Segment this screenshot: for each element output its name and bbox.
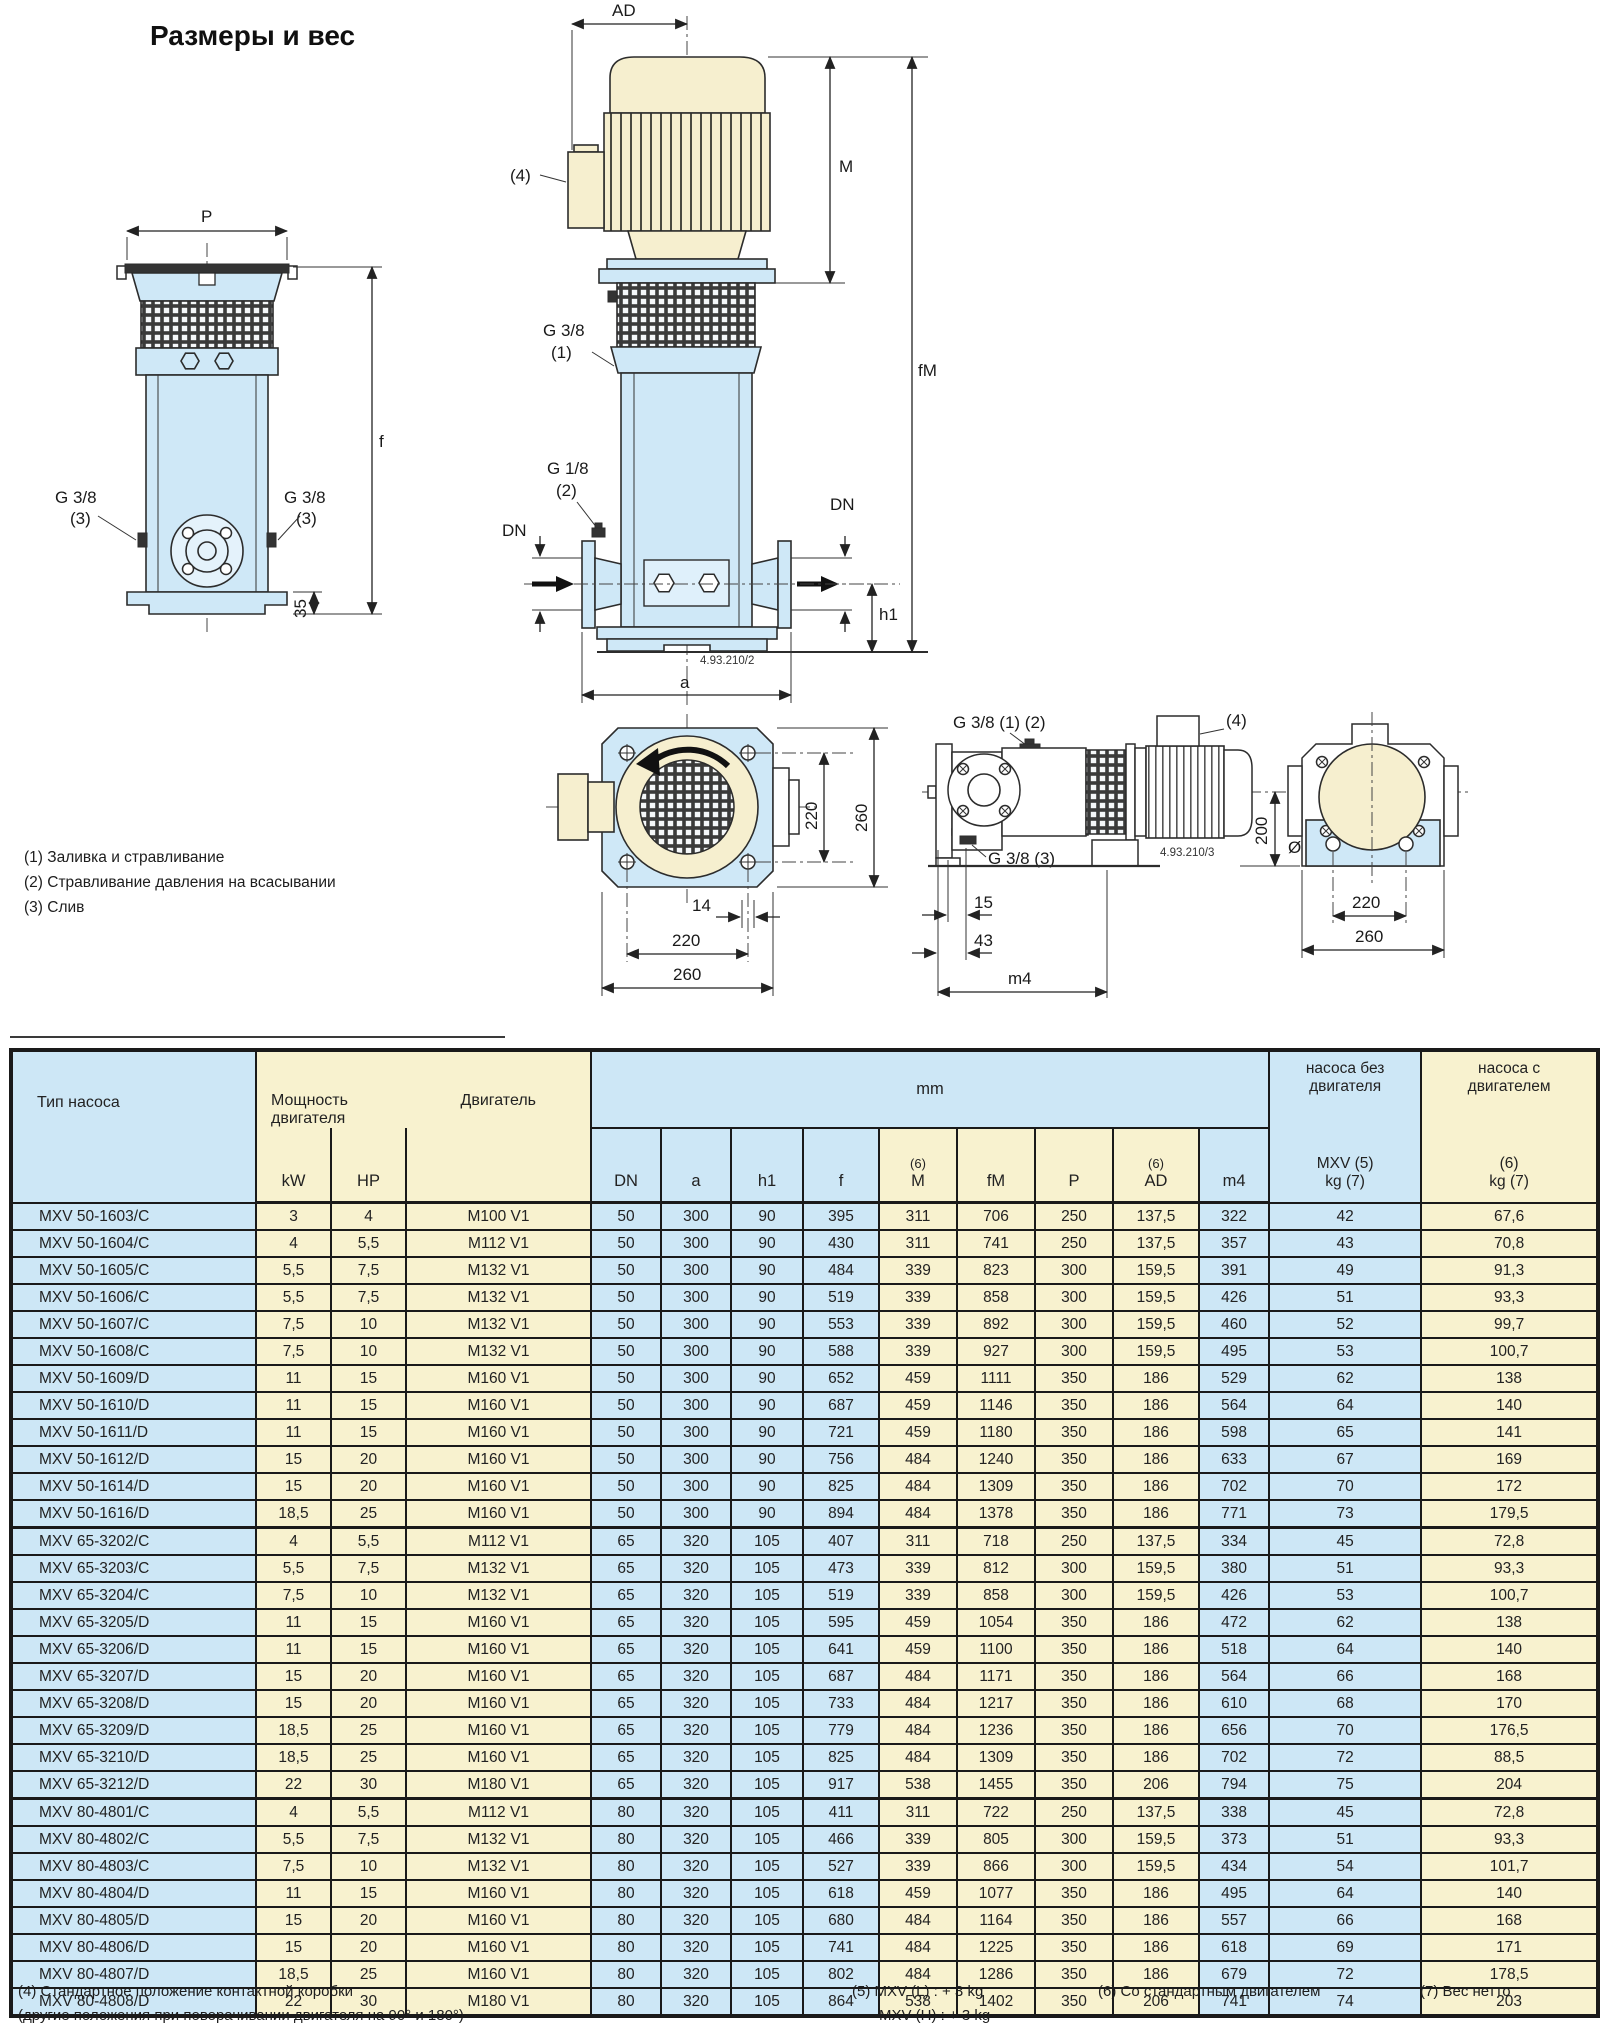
value-cell: 169 (1421, 1446, 1598, 1473)
value-cell: 25 (331, 1717, 406, 1744)
value-cell: 320 (661, 1988, 731, 2016)
value-cell: 88,5 (1421, 1744, 1598, 1771)
pump-type-cell: MXV 50-1604/C (11, 1230, 256, 1257)
value-cell: 426 (1199, 1284, 1269, 1311)
value-cell: 51 (1269, 1555, 1421, 1582)
value-cell: 168 (1421, 1907, 1598, 1934)
value-cell: M132 V1 (406, 1826, 591, 1853)
value-cell: 706 (957, 1203, 1035, 1231)
dim-label-260-h: 260 (673, 965, 701, 984)
footnote-5: (5) MXV (L) : + 3 kg MXV (H) : + 3 kg (852, 1980, 990, 2028)
value-cell: 42 (1269, 1203, 1421, 1231)
value-cell: 64 (1269, 1880, 1421, 1907)
value-cell: 1217 (957, 1690, 1035, 1717)
value-cell: 100,7 (1421, 1582, 1598, 1609)
value-cell: 473 (803, 1555, 879, 1582)
value-cell: 172 (1421, 1473, 1598, 1500)
value-cell: 350 (1035, 1717, 1113, 1744)
value-cell: 300 (661, 1473, 731, 1500)
drawing-code-side: 4.93.210/3 (1160, 847, 1214, 859)
value-cell: 338 (1199, 1799, 1269, 1827)
col-header-pump-type: Тип насоса (11, 1050, 256, 1203)
value-cell: M160 V1 (406, 1717, 591, 1744)
value-cell: 7,5 (331, 1826, 406, 1853)
col-header-motor-spacer (406, 1128, 591, 1203)
col-header-f: f (803, 1128, 879, 1203)
value-cell: 1225 (957, 1934, 1035, 1961)
value-cell: 49 (1269, 1257, 1421, 1284)
value-cell: 53 (1269, 1582, 1421, 1609)
value-cell: 466 (803, 1826, 879, 1853)
value-cell: 159,5 (1113, 1582, 1199, 1609)
value-cell: 90 (731, 1257, 803, 1284)
value-cell: 67,6 (1421, 1203, 1598, 1231)
value-cell: 90 (731, 1446, 803, 1473)
value-cell: 1309 (957, 1473, 1035, 1500)
value-cell: M160 V1 (406, 1744, 591, 1771)
value-cell: 300 (661, 1203, 731, 1231)
value-cell: 1171 (957, 1663, 1035, 1690)
value-cell: 687 (803, 1663, 879, 1690)
terminal-box (568, 152, 604, 228)
value-cell: 65 (1269, 1419, 1421, 1446)
value-cell: 15 (331, 1609, 406, 1636)
coupling-guard (141, 301, 273, 348)
value-cell: 186 (1113, 1473, 1199, 1500)
value-cell: 50 (591, 1446, 661, 1473)
value-cell: 15 (256, 1473, 331, 1500)
value-cell: 10 (331, 1311, 406, 1338)
table-row: MXV 50-1611/D1115M160 V15030090721459118… (11, 1419, 1598, 1446)
value-cell: 90 (731, 1365, 803, 1392)
value-cell: 311 (879, 1799, 957, 1827)
ref-1: (1) (551, 343, 572, 362)
value-cell: 320 (661, 1717, 731, 1744)
value-cell: 391 (1199, 1257, 1269, 1284)
drawing-pump-front: P f 35 G 3/8 (3) G 3/8 (3) (55, 207, 384, 635)
value-cell: 51 (1269, 1826, 1421, 1853)
value-cell: 1146 (957, 1392, 1035, 1419)
value-cell: 50 (591, 1311, 661, 1338)
value-cell: 186 (1113, 1880, 1199, 1907)
table-row: MXV 65-3205/D1115M160 V16532010559545910… (11, 1609, 1598, 1636)
dim-label-43: 43 (974, 931, 993, 950)
dim-label-15: 15 (974, 893, 993, 912)
value-cell: 93,3 (1421, 1826, 1598, 1853)
value-cell: 320 (661, 1663, 731, 1690)
value-cell: M160 V1 (406, 1934, 591, 1961)
value-cell: 300 (661, 1365, 731, 1392)
value-cell: 350 (1035, 1690, 1113, 1717)
value-cell: 69 (1269, 1934, 1421, 1961)
value-cell: 159,5 (1113, 1338, 1199, 1365)
value-cell: 70 (1269, 1717, 1421, 1744)
drawing-pump-plan: 220 260 14 220 260 (546, 714, 888, 996)
value-cell: 138 (1421, 1365, 1598, 1392)
value-cell: 794 (1199, 1771, 1269, 1799)
value-cell: 137,5 (1113, 1230, 1199, 1257)
power-label: Мощностьдвигателя (271, 1092, 348, 1128)
dimensions-weight-table: Тип насоса Мощностьдвигателя Двигатель m… (9, 1048, 1600, 2018)
value-cell: 339 (879, 1555, 957, 1582)
value-cell: 484 (879, 1717, 957, 1744)
value-cell: M180 V1 (406, 1771, 591, 1799)
value-cell: 1240 (957, 1446, 1035, 1473)
value-cell: 687 (803, 1392, 879, 1419)
value-cell: 518 (1199, 1636, 1269, 1663)
value-cell: 20 (331, 1690, 406, 1717)
value-cell: 320 (661, 1636, 731, 1663)
col-header-weight-without-motor: насоса бездвигателя MXV (5)kg (7) (1269, 1050, 1421, 1203)
table-row: MXV 50-1603/C34M100 V1503009039531170625… (11, 1203, 1598, 1231)
value-cell: 99,7 (1421, 1311, 1598, 1338)
dim-label-ad: AD (612, 1, 636, 20)
value-cell: M160 V1 (406, 1663, 591, 1690)
value-cell: 300 (1035, 1311, 1113, 1338)
value-cell: 105 (731, 1988, 803, 2016)
value-cell: M160 V1 (406, 1500, 591, 1528)
table-row: MXV 65-3208/D1520M160 V16532010573348412… (11, 1690, 1598, 1717)
value-cell: 339 (879, 1284, 957, 1311)
value-cell: 484 (879, 1934, 957, 1961)
value-cell: 50 (591, 1419, 661, 1446)
value-cell: M112 V1 (406, 1230, 591, 1257)
value-cell: 140 (1421, 1392, 1598, 1419)
value-cell: 11 (256, 1392, 331, 1419)
value-cell: 339 (879, 1257, 957, 1284)
value-cell: 339 (879, 1338, 957, 1365)
value-cell: 250 (1035, 1230, 1113, 1257)
col-header-a: a (661, 1128, 731, 1203)
value-cell: 320 (661, 1528, 731, 1556)
value-cell: 350 (1035, 1473, 1113, 1500)
value-cell: 73 (1269, 1500, 1421, 1528)
table-row: MXV 80-4806/D1520M160 V18032010574148412… (11, 1934, 1598, 1961)
value-cell: 557 (1199, 1907, 1269, 1934)
value-cell: 66 (1269, 1663, 1421, 1690)
value-cell: 7,5 (331, 1284, 406, 1311)
value-cell: 5,5 (256, 1826, 331, 1853)
value-cell: 430 (803, 1230, 879, 1257)
ref-3-right: (3) (296, 509, 317, 528)
ref-4-side: (4) (1226, 711, 1247, 730)
value-cell: 300 (1035, 1338, 1113, 1365)
value-cell: 22 (256, 1771, 331, 1799)
value-cell: 300 (1035, 1257, 1113, 1284)
value-cell: 171 (1421, 1934, 1598, 1961)
value-cell: 426 (1199, 1582, 1269, 1609)
value-cell: 186 (1113, 1365, 1199, 1392)
value-cell: 90 (731, 1392, 803, 1419)
dim-label-260-end: 260 (1355, 927, 1383, 946)
weight-without-motor-unit: MXV (5)kg (7) (1270, 1155, 1420, 1191)
value-cell: 45 (1269, 1528, 1421, 1556)
value-cell: 350 (1035, 1744, 1113, 1771)
value-cell: 65 (591, 1609, 661, 1636)
value-cell: M132 V1 (406, 1284, 591, 1311)
value-cell: 159,5 (1113, 1284, 1199, 1311)
value-cell: 771 (1199, 1500, 1269, 1528)
dim-label-dn-left: DN (502, 521, 527, 540)
col-header-m4: m4 (1199, 1128, 1269, 1203)
value-cell: 140 (1421, 1636, 1598, 1663)
value-cell: 18,5 (256, 1744, 331, 1771)
value-cell: 411 (803, 1799, 879, 1827)
value-cell: 300 (661, 1500, 731, 1528)
value-cell: 1077 (957, 1880, 1035, 1907)
value-cell: 495 (1199, 1338, 1269, 1365)
value-cell: 186 (1113, 1934, 1199, 1961)
value-cell: 53 (1269, 1338, 1421, 1365)
pump-base (127, 592, 287, 614)
drawing-code-front: 4.93.210/2 (700, 655, 754, 667)
ref-4: (4) (510, 166, 531, 185)
catalog-page: { "page": { "title": "Размеры и вес" }, … (0, 0, 1600, 2040)
col-header-ad: (6)AD (1113, 1128, 1199, 1203)
value-cell: 186 (1113, 1663, 1199, 1690)
value-cell: 334 (1199, 1528, 1269, 1556)
value-cell: 322 (1199, 1203, 1269, 1231)
table-row: MXV 65-3206/D1115M160 V16532010564145911… (11, 1636, 1598, 1663)
col-header-h1: h1 (731, 1128, 803, 1203)
value-cell: 311 (879, 1203, 957, 1231)
value-cell: 5,5 (331, 1528, 406, 1556)
pump-type-cell: MXV 50-1616/D (11, 1500, 256, 1528)
value-cell: 320 (661, 1961, 731, 1988)
value-cell: 50 (591, 1500, 661, 1528)
value-cell: 460 (1199, 1311, 1269, 1338)
value-cell: 105 (731, 1582, 803, 1609)
value-cell: 105 (731, 1934, 803, 1961)
value-cell: 1054 (957, 1609, 1035, 1636)
value-cell: 72,8 (1421, 1528, 1598, 1556)
value-cell: 11 (256, 1419, 331, 1446)
value-cell: 105 (731, 1826, 803, 1853)
value-cell: 350 (1035, 1446, 1113, 1473)
col-header-fm: fM (957, 1128, 1035, 1203)
motor-cap (610, 57, 765, 113)
value-cell: 50 (591, 1392, 661, 1419)
value-cell: 722 (957, 1799, 1035, 1827)
ref-2: (2) (556, 481, 577, 500)
table-row: MXV 50-1605/C5,57,5M132 V150300904843398… (11, 1257, 1598, 1284)
value-cell: 30 (331, 1771, 406, 1799)
value-cell: 350 (1035, 1500, 1113, 1528)
value-cell: 50 (591, 1338, 661, 1365)
port-label-g38-right: G 3/8 (284, 488, 326, 507)
value-cell: 756 (803, 1446, 879, 1473)
note-1: (1) Заливка и стравливание (24, 845, 336, 870)
value-cell: 65 (591, 1528, 661, 1556)
value-cell: 300 (661, 1392, 731, 1419)
value-cell: 652 (803, 1365, 879, 1392)
col-header-p: P (1035, 1128, 1113, 1203)
value-cell: 459 (879, 1419, 957, 1446)
value-cell: 733 (803, 1690, 879, 1717)
value-cell: M100 V1 (406, 1203, 591, 1231)
value-cell: 141 (1421, 1419, 1598, 1446)
value-cell: 320 (661, 1853, 731, 1880)
value-cell: 1236 (957, 1717, 1035, 1744)
value-cell: 137,5 (1113, 1203, 1199, 1231)
value-cell: 357 (1199, 1230, 1269, 1257)
dim-label-14: 14 (692, 896, 711, 915)
value-cell: 15 (256, 1934, 331, 1961)
value-cell: 588 (803, 1338, 879, 1365)
value-cell: 350 (1035, 1365, 1113, 1392)
table-row: MXV 65-3204/C7,510M132 V1653201055193398… (11, 1582, 1598, 1609)
value-cell: 15 (256, 1663, 331, 1690)
value-cell: 618 (803, 1880, 879, 1907)
value-cell: 519 (803, 1582, 879, 1609)
value-cell: 4 (256, 1230, 331, 1257)
value-cell: 11 (256, 1365, 331, 1392)
value-cell: M132 V1 (406, 1853, 591, 1880)
note-3: (3) Слив (24, 895, 336, 920)
value-cell: 67 (1269, 1446, 1421, 1473)
value-cell: 350 (1035, 1636, 1113, 1663)
pump-type-cell: MXV 65-3207/D (11, 1663, 256, 1690)
value-cell: 90 (731, 1419, 803, 1446)
value-cell: M112 V1 (406, 1799, 591, 1827)
value-cell: 186 (1113, 1690, 1199, 1717)
value-cell: 65 (591, 1582, 661, 1609)
dim-label-m: M (839, 157, 853, 176)
value-cell: 186 (1113, 1446, 1199, 1473)
value-cell: 140 (1421, 1880, 1598, 1907)
footnote-7: (7) Вес нетто (1420, 1980, 1511, 2004)
value-cell: 300 (1035, 1284, 1113, 1311)
value-cell: 1164 (957, 1907, 1035, 1934)
pump-type-cell: MXV 50-1606/C (11, 1284, 256, 1311)
value-cell: 311 (879, 1230, 957, 1257)
table-row: MXV 65-3209/D18,525M160 V165320105779484… (11, 1717, 1598, 1744)
value-cell: 721 (803, 1419, 879, 1446)
value-cell: 350 (1035, 1880, 1113, 1907)
value-cell: 4 (256, 1528, 331, 1556)
value-cell: M132 V1 (406, 1555, 591, 1582)
value-cell: 64 (1269, 1392, 1421, 1419)
value-cell: 459 (879, 1609, 957, 1636)
value-cell: 300 (661, 1446, 731, 1473)
value-cell: 105 (731, 1717, 803, 1744)
value-cell: M160 V1 (406, 1609, 591, 1636)
port-label-g38-fill: G 3/8 (543, 321, 585, 340)
value-cell: 159,5 (1113, 1257, 1199, 1284)
value-cell: 105 (731, 1690, 803, 1717)
table-row: MXV 50-1608/C7,510M132 V1503009058833992… (11, 1338, 1598, 1365)
value-cell: 250 (1035, 1799, 1113, 1827)
note-2: (2) Стравливание давления на всасывании (24, 870, 336, 895)
pump-type-cell: MXV 50-1605/C (11, 1257, 256, 1284)
value-cell: 484 (879, 1663, 957, 1690)
value-cell: 339 (879, 1582, 957, 1609)
value-cell: 80 (591, 1934, 661, 1961)
value-cell: 320 (661, 1771, 731, 1799)
value-cell: 680 (803, 1907, 879, 1934)
value-cell: 105 (731, 1744, 803, 1771)
value-cell: 595 (803, 1609, 879, 1636)
drawing-notes: (1) Заливка и стравливание (2) Стравлива… (24, 845, 336, 920)
value-cell: 72,8 (1421, 1799, 1598, 1827)
value-cell: 320 (661, 1582, 731, 1609)
value-cell: 65 (591, 1555, 661, 1582)
value-cell: 80 (591, 1880, 661, 1907)
motor-side (1146, 746, 1224, 838)
value-cell: 105 (731, 1907, 803, 1934)
dim-label-fm: fM (918, 361, 937, 380)
value-cell: 90 (731, 1338, 803, 1365)
value-cell: M132 V1 (406, 1582, 591, 1609)
drawing-pump-motor-front: AD (4) G 3/8 (1) G 1/8 (2) (502, 1, 937, 706)
table-row: MXV 50-1604/C45,5M112 V15030090430311741… (11, 1230, 1598, 1257)
value-cell: 564 (1199, 1392, 1269, 1419)
value-cell: 702 (1199, 1473, 1269, 1500)
table-row: MXV 65-3212/D2230M180 V16532010591753814… (11, 1771, 1598, 1799)
value-cell: 91,3 (1421, 1257, 1598, 1284)
port-label-g18: G 1/8 (547, 459, 589, 478)
table-row: MXV 50-1614/D1520M160 V15030090825484130… (11, 1473, 1598, 1500)
value-cell: 105 (731, 1555, 803, 1582)
flow-arrow-in (556, 576, 574, 592)
value-cell: 64 (1269, 1636, 1421, 1663)
value-cell: 320 (661, 1690, 731, 1717)
value-cell: 927 (957, 1338, 1035, 1365)
value-cell: M160 V1 (406, 1880, 591, 1907)
value-cell: 825 (803, 1473, 879, 1500)
value-cell: 380 (1199, 1555, 1269, 1582)
value-cell: 15 (256, 1907, 331, 1934)
value-cell: 718 (957, 1528, 1035, 1556)
value-cell: 100,7 (1421, 1338, 1598, 1365)
value-cell: 805 (957, 1826, 1035, 1853)
value-cell: 50 (591, 1284, 661, 1311)
value-cell: 66 (1269, 1907, 1421, 1934)
value-cell: 10 (331, 1582, 406, 1609)
value-cell: 300 (661, 1284, 731, 1311)
value-cell: 15 (256, 1446, 331, 1473)
pump-type-cell: MXV 65-3203/C (11, 1555, 256, 1582)
value-cell: 1100 (957, 1636, 1035, 1663)
port-label-g38-left: G 3/8 (55, 488, 97, 507)
value-cell: 65 (591, 1690, 661, 1717)
pump-type-cell: MXV 50-1603/C (11, 1203, 256, 1231)
pump-type-cell: MXV 50-1612/D (11, 1446, 256, 1473)
value-cell: 10 (331, 1853, 406, 1880)
value-cell: 93,3 (1421, 1555, 1598, 1582)
value-cell: 51 (1269, 1284, 1421, 1311)
dim-label-35: 35 (291, 599, 310, 618)
terminal-box-side (1157, 716, 1199, 746)
pump-type-cell: MXV 50-1607/C (11, 1311, 256, 1338)
col-header-kw: kW (256, 1128, 331, 1203)
weight-with-motor-label: насоса сдвигателем (1422, 1060, 1596, 1096)
value-cell: 7,5 (331, 1555, 406, 1582)
value-cell: 52 (1269, 1311, 1421, 1338)
pump-type-cell: MXV 80-4801/C (11, 1799, 256, 1827)
value-cell: 484 (879, 1500, 957, 1528)
value-cell: 18,5 (256, 1717, 331, 1744)
value-cell: 80 (591, 1961, 661, 1988)
pump-type-cell: MXV 65-3212/D (11, 1771, 256, 1799)
col-header-m: (6)M (879, 1128, 957, 1203)
value-cell: 472 (1199, 1609, 1269, 1636)
value-cell: 65 (591, 1771, 661, 1799)
dim-label-260-v: 260 (852, 804, 871, 832)
value-cell: 90 (731, 1473, 803, 1500)
value-cell: 484 (879, 1744, 957, 1771)
value-cell: 484 (879, 1690, 957, 1717)
